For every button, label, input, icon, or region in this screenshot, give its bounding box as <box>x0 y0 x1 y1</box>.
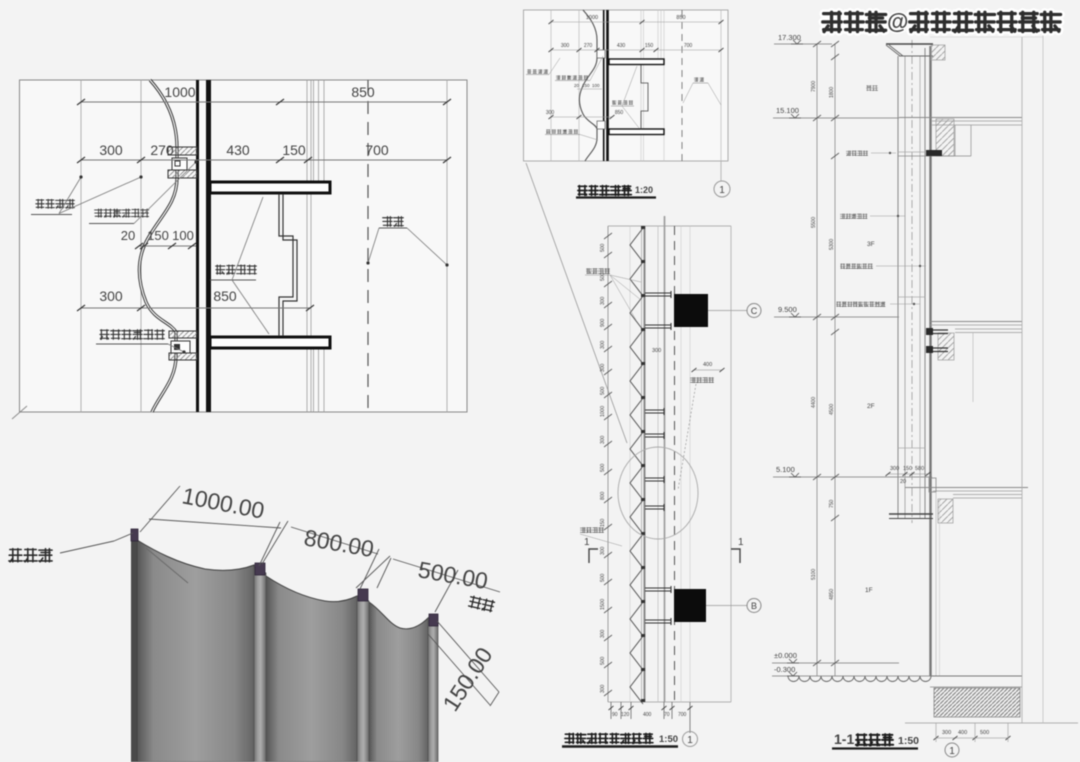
svg-text:150: 150 <box>600 518 606 527</box>
svg-text:300: 300 <box>600 684 606 693</box>
svg-text:4850: 4850 <box>829 589 835 600</box>
svg-text:1:50: 1:50 <box>898 735 919 747</box>
svg-text:7900: 7900 <box>811 81 817 92</box>
svg-text:9.500: 9.500 <box>778 305 797 314</box>
svg-text:1:20: 1:20 <box>635 185 653 195</box>
svg-text:300: 300 <box>942 730 951 736</box>
svg-text:300: 300 <box>600 435 606 444</box>
svg-text:15.100: 15.100 <box>776 106 799 115</box>
svg-text:500: 500 <box>980 730 989 736</box>
svg-text:1: 1 <box>719 185 725 196</box>
svg-text:700: 700 <box>365 142 389 158</box>
svg-text:300: 300 <box>600 340 606 349</box>
svg-text:C: C <box>751 306 758 316</box>
svg-text:400: 400 <box>958 730 967 736</box>
svg-text:90: 90 <box>612 712 618 718</box>
svg-text:300: 300 <box>600 546 606 555</box>
svg-text:850: 850 <box>615 110 624 116</box>
svg-text:300: 300 <box>890 466 899 472</box>
svg-text:430: 430 <box>617 43 626 49</box>
svg-text:900: 900 <box>600 318 606 327</box>
svg-text:300: 300 <box>561 43 570 49</box>
svg-text:1800: 1800 <box>829 87 835 98</box>
svg-text:5100: 5100 <box>811 569 817 580</box>
svg-text:1:50: 1:50 <box>659 734 678 745</box>
svg-text:1: 1 <box>687 735 693 746</box>
svg-text:4500: 4500 <box>829 404 835 415</box>
svg-text:150: 150 <box>582 83 590 88</box>
svg-text:1000: 1000 <box>164 84 195 100</box>
svg-text:5500: 5500 <box>811 217 817 228</box>
svg-text:100: 100 <box>592 83 600 88</box>
svg-text:850: 850 <box>213 288 237 304</box>
svg-text:300: 300 <box>99 288 123 304</box>
svg-text:1000: 1000 <box>600 406 606 417</box>
svg-text:120: 120 <box>621 712 630 718</box>
svg-text:5300: 5300 <box>829 239 835 250</box>
svg-text:300: 300 <box>600 363 606 372</box>
svg-text:270: 270 <box>584 43 593 49</box>
svg-text:150: 150 <box>282 142 306 158</box>
svg-text:1: 1 <box>949 746 955 757</box>
svg-text:@: @ <box>887 9 908 34</box>
svg-text:400: 400 <box>703 362 712 368</box>
svg-text:17.300: 17.300 <box>778 33 801 42</box>
svg-text:270: 270 <box>150 142 174 158</box>
svg-text:150: 150 <box>645 43 654 49</box>
svg-text:300: 300 <box>600 296 606 305</box>
svg-text:750: 750 <box>829 499 835 508</box>
svg-text:1500: 1500 <box>600 599 606 610</box>
svg-text:1: 1 <box>584 537 590 548</box>
svg-text:850: 850 <box>676 15 685 21</box>
svg-text:150: 150 <box>903 466 912 472</box>
svg-text:800: 800 <box>600 491 606 500</box>
svg-text:500: 500 <box>600 656 606 665</box>
svg-text:700: 700 <box>678 712 687 718</box>
svg-text:500: 500 <box>600 463 606 472</box>
svg-text:100: 100 <box>172 228 194 243</box>
svg-text:4400: 4400 <box>811 397 817 408</box>
svg-text:70: 70 <box>664 712 670 718</box>
svg-text:20: 20 <box>574 83 580 88</box>
svg-text:-0.300: -0.300 <box>774 665 795 674</box>
svg-text:20: 20 <box>121 228 135 243</box>
svg-text:300: 300 <box>652 348 661 354</box>
svg-text:300: 300 <box>99 142 123 158</box>
svg-text:1000: 1000 <box>586 15 598 21</box>
svg-text:500: 500 <box>600 386 606 395</box>
svg-text:1F: 1F <box>865 587 873 594</box>
svg-text:300: 300 <box>546 110 555 116</box>
svg-text:150: 150 <box>147 228 169 243</box>
svg-text:±0.000: ±0.000 <box>774 651 797 660</box>
svg-text:2F: 2F <box>867 403 875 410</box>
svg-text:3F: 3F <box>867 241 875 248</box>
svg-text:500: 500 <box>600 573 606 582</box>
svg-text:500: 500 <box>600 243 606 252</box>
svg-text:850: 850 <box>351 84 375 100</box>
svg-text:700: 700 <box>684 43 693 49</box>
svg-text:5.100: 5.100 <box>776 465 795 474</box>
svg-text:300: 300 <box>600 629 606 638</box>
svg-text:1-1: 1-1 <box>834 731 854 747</box>
svg-text:20: 20 <box>900 479 906 485</box>
svg-text:B: B <box>751 601 757 611</box>
svg-text:580: 580 <box>915 466 924 472</box>
svg-text:1: 1 <box>738 537 744 548</box>
svg-text:400: 400 <box>643 712 652 718</box>
svg-text:430: 430 <box>226 142 250 158</box>
